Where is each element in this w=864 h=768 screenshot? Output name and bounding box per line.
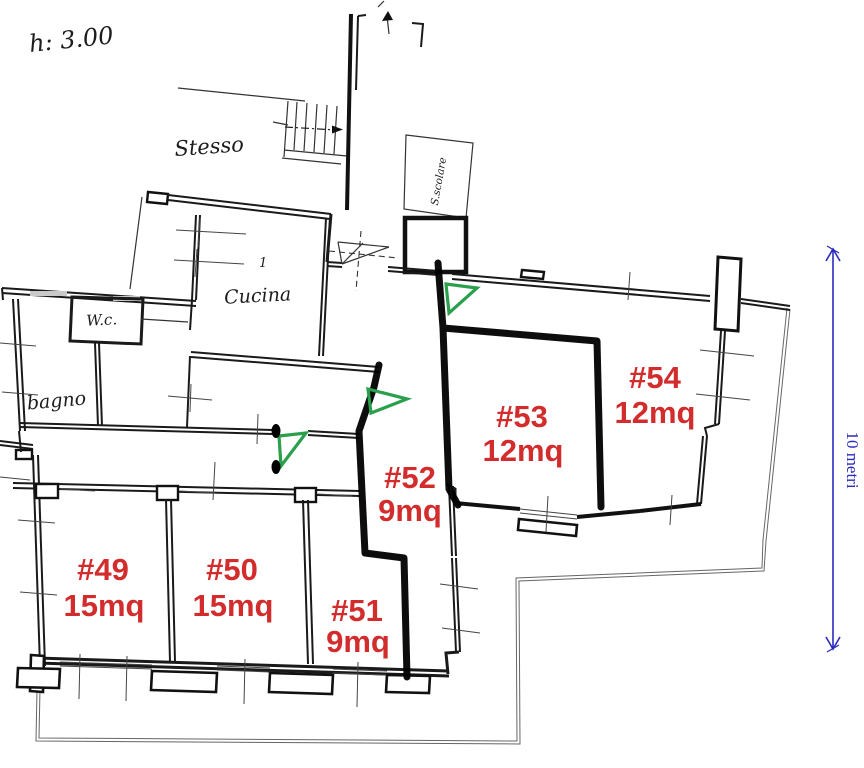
floor-plan-canvas: S.scolare — [0, 0, 864, 768]
stair-shaft-label: S.scolare — [429, 157, 449, 207]
stairwell-label: Stesso — [174, 132, 245, 161]
door-hinge-dot — [272, 424, 281, 438]
room-52-area: 9mq — [378, 493, 442, 528]
kitchen-mark: 1 — [259, 256, 267, 271]
room-53-area: 12mq — [483, 433, 564, 468]
room-53-id: #53 — [496, 399, 548, 434]
door-swing-icon — [446, 284, 477, 313]
room-52-id: #52 — [384, 460, 436, 495]
room-49-area: 15mq — [64, 588, 145, 623]
room-54-area: 12mq — [615, 395, 696, 430]
room-50-id: #50 — [206, 552, 258, 587]
staircase — [282, 101, 347, 164]
ceiling-height-label: h: 3.00 — [28, 21, 115, 58]
up-arrow-icon — [378, 1, 393, 34]
door-swing-icon — [279, 433, 306, 466]
room-51-area: 9mq — [326, 624, 390, 659]
bathroom-label: bagno — [26, 387, 87, 414]
stair-direction-arrow-icon — [332, 126, 343, 134]
handwritten-labels: h: 3.00 Stesso Cucina 1 W.c. bagno — [26, 21, 292, 414]
wc-label: W.c. — [86, 310, 118, 330]
dimension-line: 10 metri — [826, 246, 862, 652]
floor-plan-drawing: S.scolare — [0, 0, 864, 768]
room-51-id: #51 — [331, 593, 383, 628]
kitchen-label: Cucina — [224, 283, 292, 308]
entrance-door-icon — [329, 231, 398, 291]
dimension-label: 10 metri — [843, 431, 862, 488]
door-hinge-dot — [272, 460, 281, 474]
room-49-id: #49 — [77, 552, 129, 587]
room-54-id: #54 — [629, 360, 681, 395]
room-50-area: 15mq — [193, 588, 274, 623]
